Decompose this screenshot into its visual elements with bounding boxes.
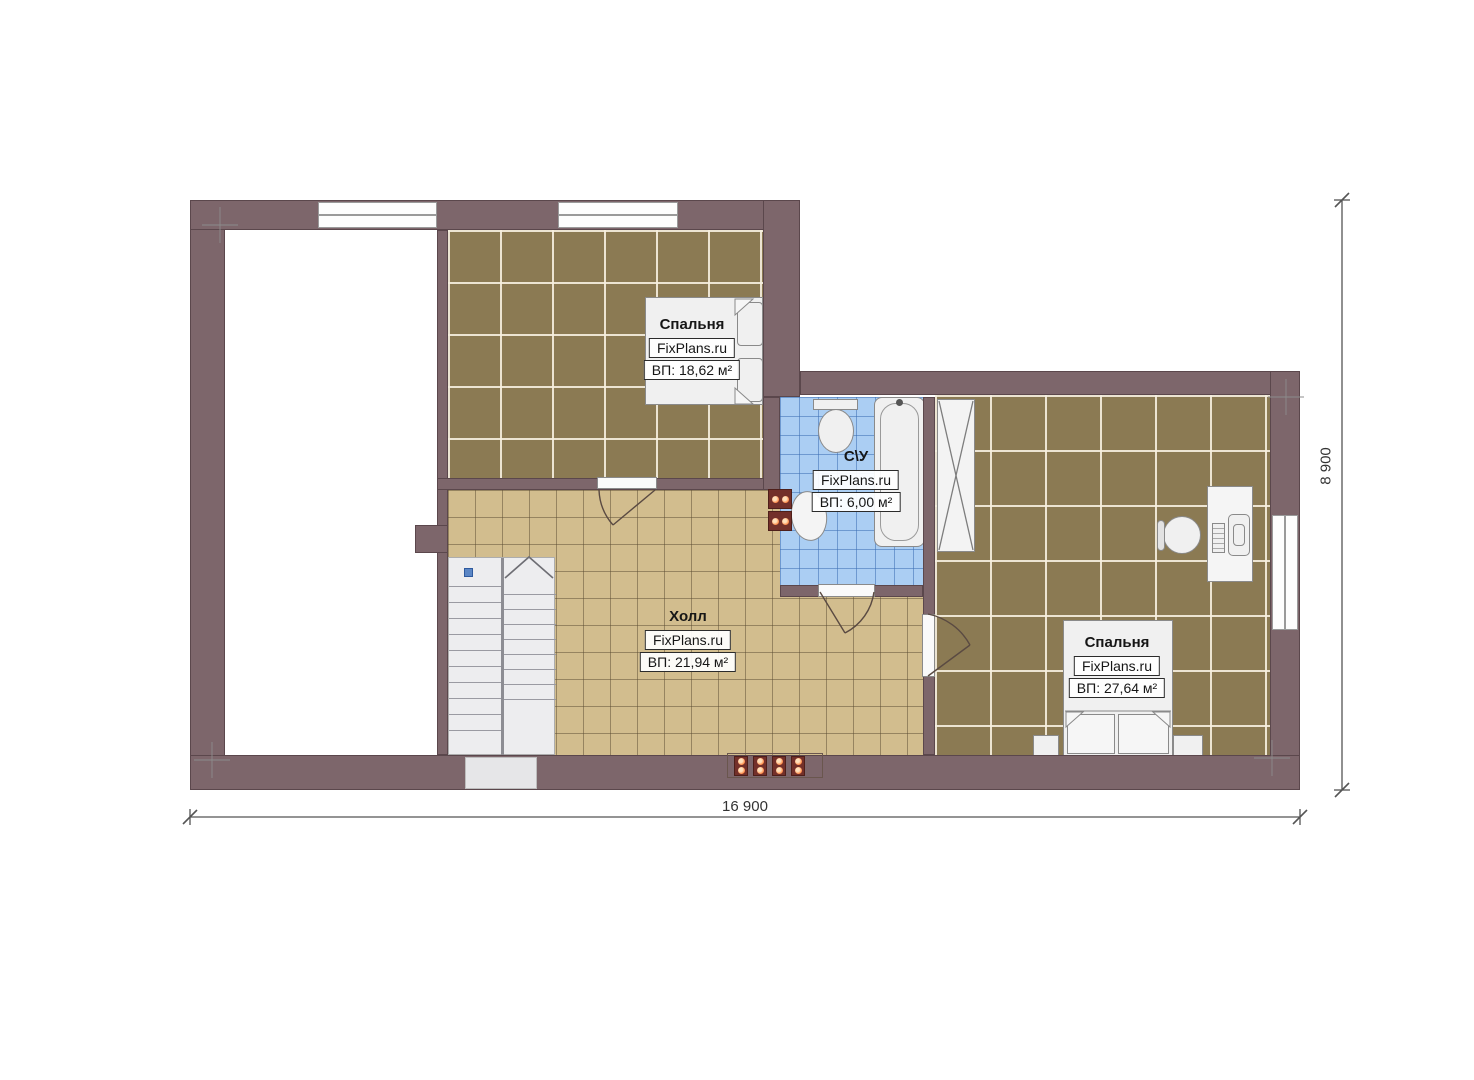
- room-name: Спальня: [1085, 634, 1150, 651]
- radiator-dot: [795, 758, 802, 765]
- radiator-bottom-1: [734, 756, 748, 776]
- wall-bathroom-west: [763, 397, 780, 490]
- radiator-dot: [772, 496, 779, 503]
- wall-left: [190, 200, 225, 790]
- stair-flight-left: [449, 571, 501, 733]
- radiator-dot: [772, 518, 779, 525]
- radiator-bottom-4: [791, 756, 805, 776]
- radiator-dot: [782, 518, 789, 525]
- desk-chair-back: [1157, 520, 1165, 551]
- radiator-dot: [776, 767, 783, 774]
- room-label-bathroom: С\У FixPlans.ru ВП: 6,00 м²: [812, 448, 901, 512]
- room-label-bedroom-2: Спальня FixPlans.ru ВП: 27,64 м²: [1069, 634, 1165, 698]
- door-leaf-bathroom: [818, 584, 875, 597]
- keyboard: [1212, 523, 1225, 553]
- radiator-hall-upper: [768, 489, 792, 509]
- stair-marker: [464, 568, 473, 577]
- window-top-side-room: [318, 202, 437, 228]
- radiator-bottom-2: [753, 756, 767, 776]
- room-area: ВП: 18,62 м²: [644, 360, 740, 380]
- wall-hall-east: [923, 397, 935, 755]
- wall-top-right-section: [800, 371, 1300, 395]
- nightstand-left: [1033, 735, 1059, 756]
- radiator-dot: [738, 758, 745, 765]
- stair-landing: [465, 757, 537, 789]
- dimension-height-label: 8 900: [1318, 447, 1335, 485]
- room-area: ВП: 21,94 м²: [640, 652, 736, 672]
- bed-1-pillow-bottom: [737, 358, 763, 402]
- stair-flight-right: [504, 580, 556, 700]
- desk-chair: [1163, 516, 1201, 554]
- radiator-dot: [782, 496, 789, 503]
- dimension-line-height: [1334, 193, 1350, 797]
- room-brand: FixPlans.ru: [649, 338, 735, 358]
- radiator-bottom-3: [772, 756, 786, 776]
- room-area: ВП: 27,64 м²: [1069, 678, 1165, 698]
- toilet-bowl: [818, 409, 854, 453]
- window-top-bedroom-1: [558, 202, 678, 228]
- room-name: Спальня: [660, 316, 725, 333]
- bathtub-tap: [896, 399, 903, 406]
- wall-pilaster: [415, 525, 448, 553]
- bed-2-mattress-right: [1118, 714, 1169, 754]
- wall-top-left-section: [190, 200, 800, 230]
- wall-divider-side-room: [437, 230, 448, 755]
- wall-right-of-bedroom-1: [763, 200, 800, 397]
- radiator-dot: [757, 758, 764, 765]
- stair-stringer: [501, 558, 504, 756]
- nightstand-right: [1173, 735, 1203, 756]
- room-label-bedroom-1: Спальня FixPlans.ru ВП: 18,62 м²: [644, 316, 740, 380]
- floor-plan-canvas: Спальня FixPlans.ru ВП: 18,62 м² С\У Fix…: [0, 0, 1474, 1080]
- room-brand: FixPlans.ru: [1074, 656, 1160, 676]
- bed-2-mattress-left: [1067, 714, 1115, 754]
- room-brand: FixPlans.ru: [645, 630, 731, 650]
- room-name: С\У: [844, 448, 868, 465]
- staircase: [448, 557, 555, 755]
- window-right-bedroom-2: [1272, 515, 1298, 630]
- room-name: Холл: [669, 608, 707, 625]
- wardrobe: [937, 399, 975, 552]
- radiator-hall-lower: [768, 511, 792, 531]
- radiator-dot: [757, 767, 764, 774]
- room-label-hall: Холл FixPlans.ru ВП: 21,94 м²: [640, 608, 736, 672]
- side-room-floor: [225, 230, 437, 755]
- room-area: ВП: 6,00 м²: [812, 492, 901, 512]
- monitor-screen: [1233, 524, 1245, 546]
- radiator-dot: [776, 758, 783, 765]
- radiator-dot: [795, 767, 802, 774]
- radiator-dot: [738, 767, 745, 774]
- dimension-width-label: 16 900: [722, 798, 768, 815]
- bed-1-pillow-top: [737, 302, 763, 346]
- door-leaf-bedroom-1: [597, 477, 657, 489]
- room-brand: FixPlans.ru: [813, 470, 899, 490]
- door-leaf-bedroom-2: [922, 614, 935, 677]
